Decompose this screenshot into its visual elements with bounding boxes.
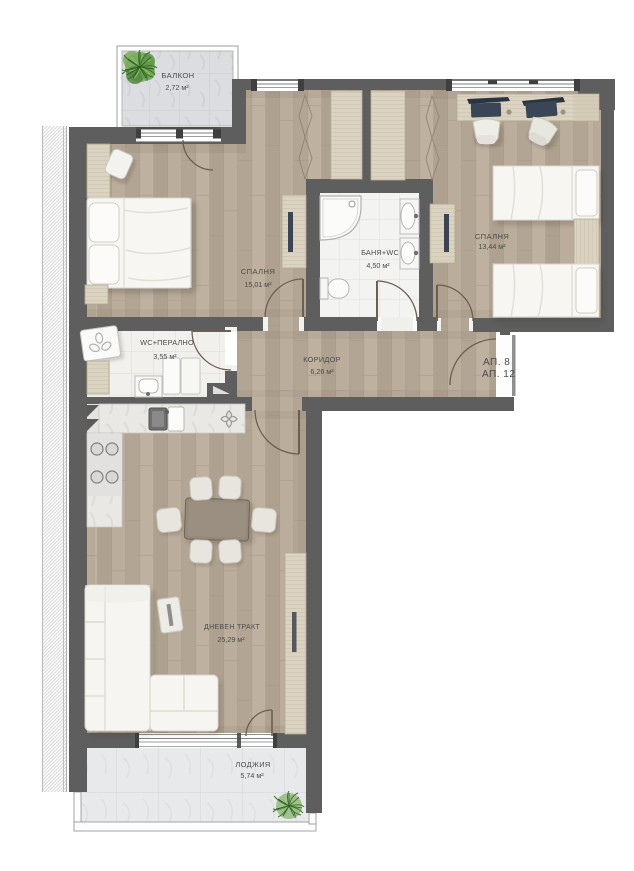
- svg-text:2,72 м²: 2,72 м²: [165, 83, 189, 92]
- svg-text:СПАЛНЯ: СПАЛНЯ: [475, 232, 510, 241]
- svg-text:6,26 м²: 6,26 м²: [310, 367, 334, 376]
- svg-text:СПАЛНЯ: СПАЛНЯ: [241, 267, 276, 276]
- svg-text:БАЛКОН: БАЛКОН: [161, 71, 194, 80]
- svg-text:15,01 м²: 15,01 м²: [244, 280, 272, 289]
- svg-text:13,44 м²: 13,44 м²: [478, 242, 506, 251]
- svg-text:АП. 8: АП. 8: [483, 357, 510, 368]
- svg-text:25,29 м²: 25,29 м²: [217, 635, 245, 644]
- svg-text:3,55 м²: 3,55 м²: [153, 352, 177, 361]
- svg-text:БАНЯ+WC: БАНЯ+WC: [361, 248, 399, 257]
- svg-text:5,74 м²: 5,74 м²: [240, 771, 264, 780]
- svg-text:4,50 м²: 4,50 м²: [366, 261, 390, 270]
- svg-text:АП. 12: АП. 12: [482, 369, 515, 380]
- svg-text:ДНЕВЕН ТРАКТ: ДНЕВЕН ТРАКТ: [204, 624, 260, 631]
- svg-text:WC+ПЕРАЛНО: WC+ПЕРАЛНО: [140, 338, 194, 347]
- svg-text:ЛОДЖИЯ: ЛОДЖИЯ: [235, 760, 270, 769]
- svg-text:КОРИДОР: КОРИДОР: [303, 355, 341, 364]
